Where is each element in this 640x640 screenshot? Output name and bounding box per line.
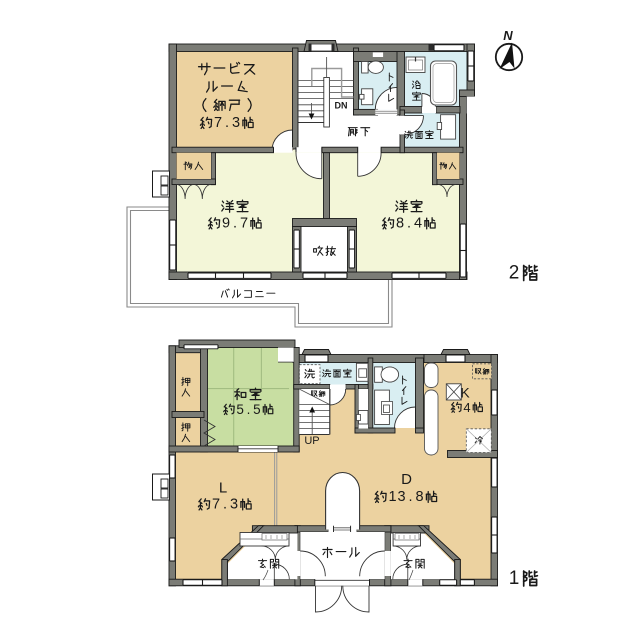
svg-text:7: 7 [240,216,248,232]
svg-text:UP: UP [304,435,319,447]
svg-text:5: 5 [236,402,244,417]
svg-text:.: . [223,497,227,513]
svg-text:3: 3 [397,489,405,505]
svg-text:7: 7 [212,497,220,513]
svg-text:.: . [247,402,251,417]
svg-text:3: 3 [232,115,240,131]
svg-text:5: 5 [253,402,261,417]
svg-text:.: . [225,115,229,131]
svg-text:8: 8 [415,489,423,505]
svg-text:.: . [407,216,411,232]
svg-text:9: 9 [222,216,230,232]
svg-text:4: 4 [463,400,470,415]
svg-text:.: . [233,216,237,232]
svg-text:1: 1 [509,568,520,589]
svg-text:8: 8 [396,216,404,232]
svg-text:2: 2 [509,263,520,284]
svg-text:1: 1 [388,489,396,505]
svg-text:4: 4 [414,216,422,232]
svg-text:DN: DN [335,101,348,111]
svg-text:L: L [219,480,227,497]
svg-text:D: D [401,471,412,488]
svg-text:3: 3 [230,497,238,513]
svg-text:N: N [503,28,513,43]
svg-text:K: K [460,385,470,401]
svg-text:.: . [408,489,412,505]
svg-text:7: 7 [214,115,222,131]
